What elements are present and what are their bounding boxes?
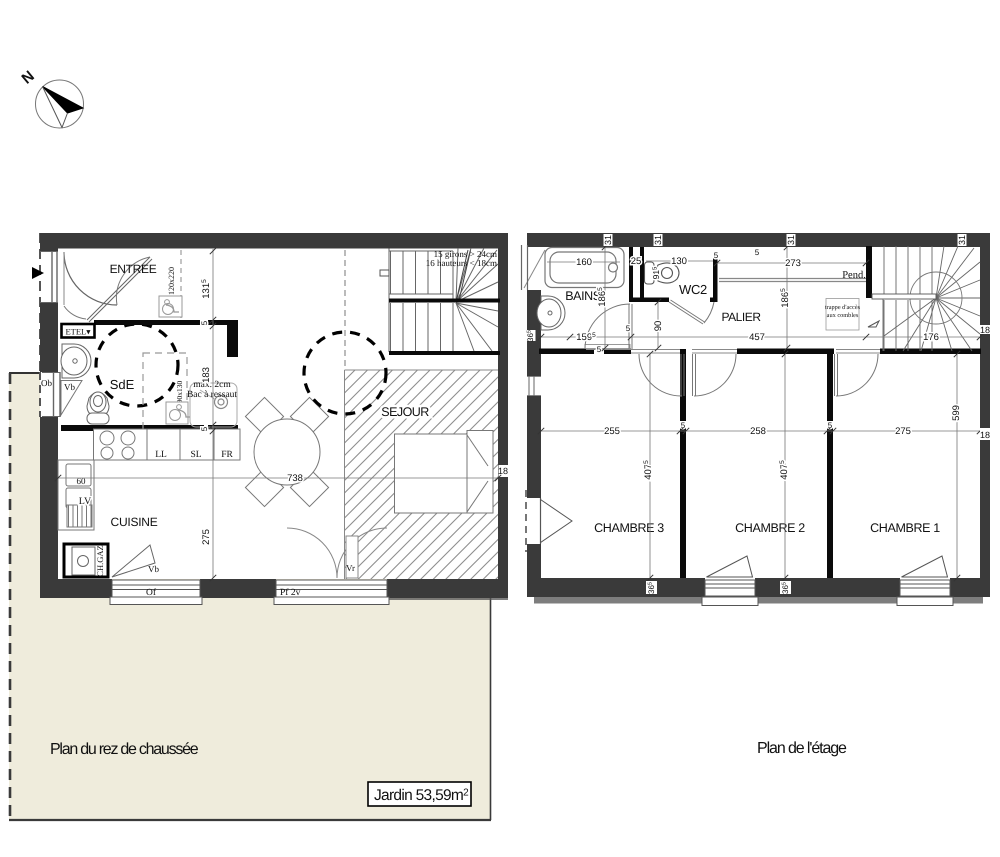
svg-text:457: 457: [749, 332, 765, 343]
svg-text:5: 5: [755, 248, 760, 257]
svg-text:Vb: Vb: [64, 382, 75, 392]
svg-text:599: 599: [951, 405, 962, 421]
svg-text:275: 275: [895, 426, 911, 437]
svg-text:aux combles: aux combles: [827, 312, 859, 319]
svg-text:Pf 2v: Pf 2v: [280, 588, 301, 598]
svg-text:5: 5: [200, 320, 209, 325]
svg-text:CHAMBRE 1: CHAMBRE 1: [870, 521, 940, 535]
svg-text:Of: Of: [146, 588, 157, 598]
svg-text:WC2: WC2: [679, 282, 707, 297]
svg-text:176: 176: [923, 332, 939, 343]
svg-text:ENTREE: ENTREE: [110, 262, 157, 276]
svg-text:Bac à ressaut: Bac à ressaut: [187, 390, 237, 400]
svg-text:18: 18: [980, 430, 990, 440]
svg-text:LL: LL: [155, 450, 167, 460]
svg-text:max. 2cm: max. 2cm: [193, 380, 231, 390]
svg-text:CH.GAZ: CH.GAZ: [95, 545, 105, 576]
svg-text:18: 18: [498, 466, 508, 476]
svg-text:5: 5: [200, 426, 209, 431]
svg-text:255: 255: [604, 426, 620, 437]
svg-text:LV: LV: [79, 496, 92, 507]
svg-text:ETEL▾: ETEL▾: [65, 327, 91, 337]
svg-text:160: 160: [576, 257, 592, 268]
svg-text:60: 60: [77, 476, 87, 486]
svg-text:31: 31: [653, 235, 663, 245]
svg-text:31: 31: [786, 235, 796, 245]
svg-text:Pend.: Pend.: [842, 270, 866, 281]
svg-text:Jardin 53,59m2: Jardin 53,59m2: [374, 787, 469, 804]
svg-text:Plan de l'étage: Plan de l'étage: [757, 740, 847, 757]
svg-text:25: 25: [631, 256, 642, 267]
svg-text:Plan du rez de chaussée: Plan du rez de chaussée: [50, 741, 199, 758]
svg-text:120x220: 120x220: [167, 267, 176, 295]
svg-text:SdE: SdE: [110, 377, 135, 392]
svg-text:31: 31: [957, 235, 967, 245]
svg-text:258: 258: [750, 426, 766, 437]
svg-text:16 hauteurs < 18cm: 16 hauteurs < 18cm: [426, 258, 497, 268]
svg-text:CUISINE: CUISINE: [111, 515, 158, 529]
svg-text:trappe d'accès: trappe d'accès: [825, 304, 861, 311]
svg-text:SL: SL: [190, 450, 201, 460]
svg-text:5: 5: [714, 251, 719, 260]
svg-text:BAINS: BAINS: [565, 289, 601, 303]
svg-text:5: 5: [681, 421, 686, 430]
svg-text:Vb: Vb: [148, 564, 159, 574]
svg-text:31: 31: [603, 235, 613, 245]
svg-text:Ob: Ob: [41, 378, 52, 388]
svg-text:PALIER: PALIER: [721, 310, 761, 324]
svg-text:275: 275: [201, 529, 212, 545]
svg-text:273: 273: [785, 258, 801, 269]
svg-text:CHAMBRE 3: CHAMBRE 3: [594, 521, 664, 535]
svg-text:Vr: Vr: [346, 563, 355, 573]
svg-text:90: 90: [653, 321, 664, 332]
svg-text:5: 5: [626, 324, 631, 333]
svg-text:183: 183: [201, 367, 212, 383]
svg-text:18: 18: [980, 325, 990, 335]
svg-text:130: 130: [671, 256, 687, 267]
svg-text:738: 738: [287, 473, 303, 484]
svg-text:5: 5: [597, 345, 602, 354]
svg-text:5: 5: [828, 421, 833, 430]
svg-text:CHAMBRE 2: CHAMBRE 2: [735, 521, 805, 535]
svg-text:SEJOUR: SEJOUR: [381, 405, 429, 419]
svg-text:FR: FR: [221, 450, 233, 460]
svg-text:90x130: 90x130: [175, 381, 184, 404]
